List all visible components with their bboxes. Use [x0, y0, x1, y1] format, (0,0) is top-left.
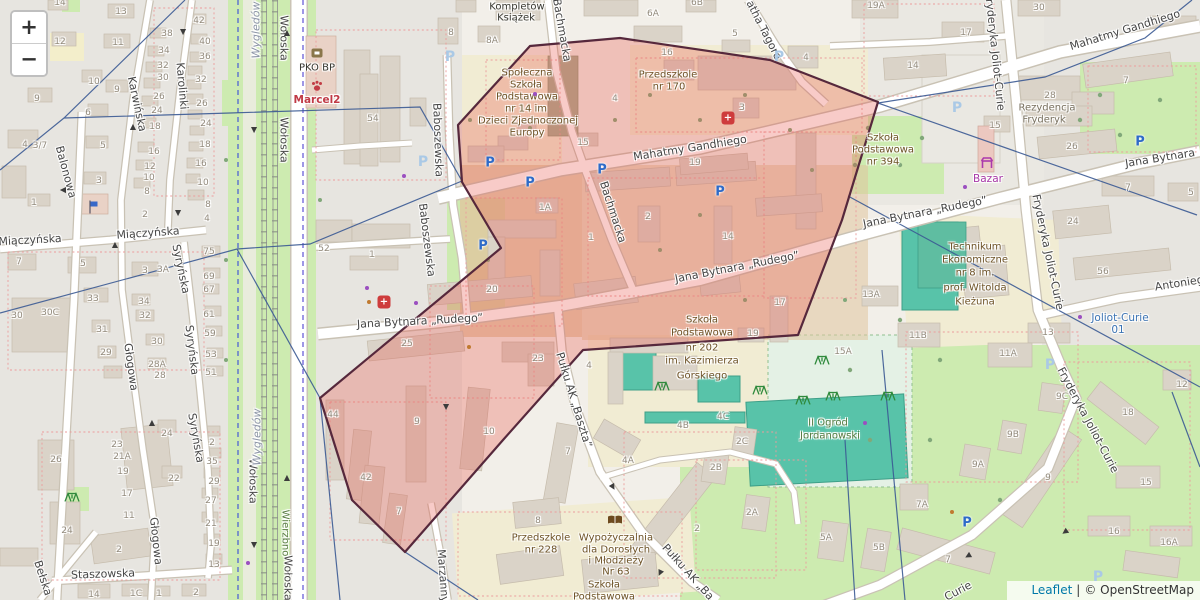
- building-number: 3A: [157, 265, 169, 275]
- parking-icon: P: [485, 157, 495, 170]
- building-number: 24: [61, 526, 72, 536]
- street-label: Wołoska: [278, 117, 291, 162]
- oneway-arrow-icon: ▲: [175, 209, 181, 217]
- building-number: 9A: [972, 460, 984, 470]
- building-number: 1: [156, 589, 162, 599]
- building-number: 7: [16, 257, 22, 267]
- building-number: 15: [989, 121, 1000, 131]
- poi-label: Fryderyk: [1022, 115, 1065, 126]
- building-number: 34: [138, 297, 149, 307]
- building-number: 54: [367, 114, 378, 124]
- building-number: 19: [689, 158, 700, 168]
- building-number: 7: [565, 447, 571, 457]
- poi-label: Wygledów: [251, 409, 264, 466]
- building-number: 42: [360, 473, 371, 483]
- oneway-arrow-icon: ▲: [149, 419, 155, 427]
- street-label: Wołoska: [282, 555, 295, 600]
- building-number: 18: [1122, 408, 1133, 418]
- building-number: 26: [50, 455, 61, 465]
- building-number: 33: [87, 294, 98, 304]
- poi-label: 01: [1111, 324, 1124, 336]
- building-number: 13: [208, 560, 219, 570]
- building-number: 2: [209, 438, 215, 448]
- building-number: 5: [732, 29, 738, 39]
- ukraine-flag-icon: [1013, 585, 1027, 595]
- building-number: 7: [1123, 76, 1129, 86]
- building-number: 4B: [677, 421, 689, 431]
- building-number: 2: [116, 545, 122, 555]
- building-number: 15: [577, 138, 588, 148]
- building-number: 14: [907, 61, 918, 71]
- building-number: 13A: [862, 290, 880, 300]
- building-number: 44: [327, 410, 338, 420]
- building-number: 16: [148, 147, 159, 157]
- poi-label: Joliot-Curie: [1091, 312, 1148, 324]
- building-number: 8A: [486, 36, 498, 46]
- building-number: 4: [586, 361, 592, 371]
- building-number: 20: [486, 285, 497, 295]
- building-number: 16: [195, 159, 206, 169]
- building-number: 16: [661, 48, 672, 58]
- building-number: 17: [960, 28, 971, 38]
- pharmacy-icon: +: [722, 112, 735, 125]
- building-number: 40: [199, 37, 210, 47]
- building-number: 8: [448, 28, 454, 38]
- building-number: 34: [158, 46, 169, 56]
- building-number: 24: [1067, 217, 1078, 227]
- building-number: 21A: [113, 452, 131, 462]
- poi-label: prof. Witolda: [943, 283, 1006, 294]
- building-number: 12: [144, 162, 155, 172]
- oneway-arrow-icon: ▲: [251, 541, 257, 549]
- building-number: 32: [139, 311, 150, 321]
- building-number: 1A: [539, 203, 551, 213]
- building-number: 1: [369, 250, 375, 260]
- building-number: 9: [34, 94, 40, 104]
- parking-icon: P: [774, 50, 784, 64]
- building-number: 7: [1125, 183, 1131, 193]
- playground-icon: [825, 392, 841, 401]
- poi-label: Europy: [510, 128, 545, 139]
- poi-label: Wypożyczalnia: [579, 533, 653, 544]
- parking-icon: P: [525, 177, 535, 190]
- poi-label: Przedszkole: [512, 533, 571, 544]
- poi-dot-icon: [365, 286, 369, 290]
- building-number: 1C: [130, 589, 142, 599]
- poi-label: II Ogród: [808, 418, 848, 429]
- building-number: 61: [203, 310, 214, 320]
- poi-label: dla Dorosłych: [582, 545, 650, 556]
- building-number: 14: [54, 0, 65, 8]
- poi-label: Podstawowa: [852, 145, 914, 156]
- building-number: 8: [535, 516, 541, 526]
- building-number: 6B: [691, 0, 703, 8]
- poi-label: nr 170: [653, 82, 686, 93]
- building-number: 4C: [717, 412, 729, 422]
- poi-label: Technikum: [948, 242, 1001, 253]
- oneway-arrow-icon: ▲: [59, 187, 67, 193]
- building-number: 53: [205, 350, 216, 360]
- building-number: 18: [199, 140, 210, 150]
- oneway-arrow-icon: ▲: [130, 123, 136, 131]
- oneway-arrow-icon: ▲: [284, 474, 290, 482]
- building-number: 5B: [873, 543, 885, 553]
- building-number: 24: [161, 429, 172, 439]
- veterinary-paw-icon: [311, 80, 324, 93]
- poi-label: nr 228: [525, 545, 558, 556]
- building-number: 27: [205, 496, 216, 506]
- building-number: 5A: [820, 533, 832, 543]
- building-number: 30: [11, 311, 22, 321]
- poi-label: Społeczna: [501, 68, 552, 79]
- poi-dot-icon: [950, 510, 954, 514]
- building-number: 24: [200, 119, 211, 129]
- oneway-arrow-icon: ▲: [284, 29, 290, 37]
- parking-icon: P: [952, 101, 962, 115]
- poi-label: im. Kazimierza: [665, 356, 739, 367]
- zoom-out-button[interactable]: −: [12, 44, 46, 75]
- poi-dot-icon: [367, 300, 371, 304]
- poi-label: Podstawowa: [573, 592, 635, 600]
- poi-label: Szkoła: [867, 133, 899, 144]
- poi-label: Nr 63: [602, 567, 630, 578]
- parking-icon: P: [445, 50, 455, 64]
- poi-label: nr 8 im.: [956, 268, 995, 279]
- library-icon: [607, 515, 623, 526]
- parking-icon: P: [478, 240, 488, 253]
- bank-icon: [312, 49, 323, 58]
- parking-icon: P: [597, 164, 607, 177]
- building-number: 28: [154, 371, 165, 381]
- oneway-arrow-icon: ▲: [112, 241, 118, 249]
- building-number: 35: [206, 457, 217, 467]
- building-number: 1: [31, 198, 37, 208]
- building-number: 12: [1176, 380, 1187, 390]
- poi-label: Szkoła: [510, 80, 542, 91]
- poi-dot-icon: [963, 185, 967, 189]
- building-number: 7: [945, 555, 951, 565]
- poi-label: Górskiego: [677, 371, 727, 382]
- poi-dot-icon: [467, 345, 471, 349]
- playground-icon: [880, 392, 896, 401]
- building-number: 23: [532, 354, 543, 364]
- oneway-arrow-icon: ▲: [180, 28, 186, 36]
- poi-label: Szkoła: [588, 580, 620, 591]
- building-number: 2: [645, 212, 651, 222]
- building-number: 15A: [834, 347, 852, 357]
- poi-label: Kieżuna: [955, 297, 995, 308]
- building-number: 6A: [647, 9, 659, 19]
- building-number: 11: [112, 38, 123, 48]
- building-number: 26: [196, 99, 207, 109]
- pharmacy-icon: +: [378, 296, 391, 309]
- poi-label: Wygledów: [250, 2, 263, 59]
- building-number: 30: [1033, 3, 1044, 13]
- building-number: 8: [144, 187, 150, 197]
- building-number: 36: [199, 52, 210, 62]
- building-number: 15: [1140, 478, 1151, 488]
- poi-label: Kompletów: [489, 2, 544, 13]
- oneway-arrow-icon: ▲: [443, 403, 449, 411]
- building-number: 19A: [867, 1, 885, 11]
- poi-label: Książek: [497, 13, 535, 24]
- building-number: 59: [204, 329, 215, 339]
- building-number: 13: [1042, 328, 1053, 338]
- building-number: 2B: [710, 463, 722, 473]
- building-number: 3/7: [33, 141, 47, 151]
- poi-label: Podstawowa: [496, 92, 558, 103]
- poi-label: nr 202: [686, 343, 719, 354]
- building-number: 4: [803, 53, 809, 63]
- poi-label: Dzieci Zjednoczonej: [478, 116, 578, 127]
- playground-icon: [654, 382, 670, 391]
- building-number: 52: [318, 244, 329, 254]
- zoom-in-button[interactable]: +: [12, 12, 46, 44]
- attribution-separator: |: [1076, 583, 1080, 597]
- building-number: 11A: [999, 349, 1017, 359]
- building-number: 24: [151, 106, 162, 116]
- building-number: 23: [111, 440, 122, 450]
- parking-icon: P: [1045, 358, 1055, 372]
- building-number: 30: [157, 73, 168, 83]
- building-number: 7A: [916, 500, 928, 510]
- oneway-arrow-icon: ▲: [251, 126, 257, 134]
- building-number: 13: [115, 7, 126, 17]
- poi-dot-icon: [246, 561, 250, 565]
- poi-label: Rezydencja: [1018, 103, 1075, 114]
- building-number: 51: [205, 368, 216, 378]
- building-number: 21: [205, 519, 216, 529]
- street-label: Wołoska: [278, 15, 291, 60]
- osm-copyright[interactable]: © OpenStreetMap: [1084, 583, 1194, 597]
- zoom-control: + −: [10, 10, 48, 77]
- building-number: 10: [483, 427, 494, 437]
- poi-dot-icon: [414, 301, 418, 305]
- playground-icon: [752, 386, 768, 395]
- building-number: 12: [54, 37, 65, 47]
- building-number: 16A: [1160, 538, 1178, 548]
- building-number: 2C: [736, 437, 748, 447]
- building-number: 32: [157, 61, 168, 71]
- building-number: 1: [588, 233, 594, 243]
- poi-label: Marcel2: [294, 94, 341, 106]
- building-number: 18: [149, 122, 160, 132]
- building-number: 26: [153, 92, 164, 102]
- playground-icon: [814, 356, 830, 365]
- poi-label: Jordanowski: [800, 431, 860, 442]
- building-number: 19: [117, 467, 128, 477]
- building-number: 26: [1066, 142, 1077, 152]
- building-number: 7: [396, 507, 402, 517]
- leaflet-link[interactable]: Leaflet: [1031, 583, 1072, 597]
- building-number: 9B: [1007, 430, 1019, 440]
- building-number: 25: [401, 339, 412, 349]
- building-number: 8: [205, 200, 211, 210]
- building-number: 22: [168, 474, 179, 484]
- building-number: 5: [80, 259, 86, 269]
- building-number: 2: [142, 210, 148, 220]
- building-number: 2: [694, 524, 700, 534]
- building-number: 4: [22, 140, 28, 150]
- poi-label: Bazar: [973, 173, 1003, 185]
- poi-label: nr 14 im: [505, 104, 547, 115]
- building-number: 31: [96, 325, 107, 335]
- building-number: 14: [722, 232, 733, 242]
- building-number: 5: [100, 141, 106, 151]
- building-number: 19: [747, 329, 758, 339]
- building-number: 30: [151, 337, 162, 347]
- building-number: 29: [100, 348, 111, 358]
- building-number: 2: [193, 588, 199, 598]
- poi-dot-icon: [402, 174, 406, 178]
- building-number: 9: [1045, 473, 1051, 483]
- flag-icon: [88, 201, 98, 214]
- parking-icon: P: [418, 155, 428, 169]
- poi-label: Szkoła: [686, 315, 718, 326]
- building-number: 4: [612, 94, 618, 104]
- building-number: 10: [197, 178, 208, 188]
- building-number: 3: [739, 103, 745, 113]
- building-number: 4A: [622, 456, 634, 466]
- building-number: 10: [88, 77, 99, 87]
- building-number: 9: [114, 85, 120, 95]
- parking-icon: P: [1135, 136, 1145, 149]
- poi-label: PKO BP: [299, 63, 335, 74]
- marketplace-icon: [980, 156, 995, 170]
- building-number: 16: [1108, 527, 1119, 537]
- poi-label: nr 394: [867, 157, 900, 168]
- street-label: Baboszewska: [430, 103, 446, 177]
- building-number: 30C: [41, 308, 59, 318]
- building-number: 32: [195, 75, 206, 85]
- building-number: 2A: [746, 508, 758, 518]
- parking-icon: P: [962, 517, 972, 530]
- playground-icon: [64, 493, 80, 502]
- building-number: 69: [203, 272, 214, 282]
- poi-label: Przedszkole: [639, 70, 698, 81]
- building-number: 11: [123, 511, 134, 521]
- parking-icon: P: [715, 186, 725, 199]
- building-number: 4: [204, 214, 210, 224]
- building-number: 9: [414, 417, 420, 427]
- building-number: 56: [1097, 267, 1108, 277]
- building-number: 42: [193, 16, 204, 26]
- building-number: 3: [96, 176, 102, 186]
- poi-dot-icon: [533, 92, 537, 96]
- building-number: 11B: [909, 331, 927, 341]
- building-number: 14: [88, 590, 99, 600]
- building-number: 17: [774, 298, 785, 308]
- poi-dot-icon: [1078, 315, 1082, 319]
- building-number: 67: [203, 285, 214, 295]
- poi-label: i Młodzieży: [588, 556, 643, 567]
- poi-label: Wierzbno: [280, 510, 291, 557]
- building-number: 6: [85, 108, 91, 118]
- building-number: 75: [203, 247, 214, 257]
- poi-dot-icon: [863, 421, 867, 425]
- building-number: 28A: [148, 360, 166, 370]
- building-number: 38: [161, 29, 172, 39]
- poi-label: Podstawowa: [671, 328, 733, 339]
- building-number: 17: [121, 489, 132, 499]
- building-number: 9C: [1056, 392, 1068, 402]
- building-number: 3: [142, 266, 148, 276]
- street-label: Staszowska: [71, 566, 135, 581]
- building-number: 28: [1044, 91, 1055, 101]
- playground-icon: [795, 396, 811, 405]
- building-number: 19: [208, 539, 219, 549]
- poi-label: Ekonomiczne: [942, 255, 1008, 266]
- building-number: 29: [208, 477, 219, 487]
- building-number: 10: [143, 173, 154, 183]
- building-number: 5: [1188, 188, 1194, 198]
- map-canvas[interactable]: WołoskaWołoskaWołoskaWołoskaMahatmy Gand…: [0, 0, 1200, 600]
- attribution-bar: Leaflet | © OpenStreetMap: [1007, 581, 1200, 600]
